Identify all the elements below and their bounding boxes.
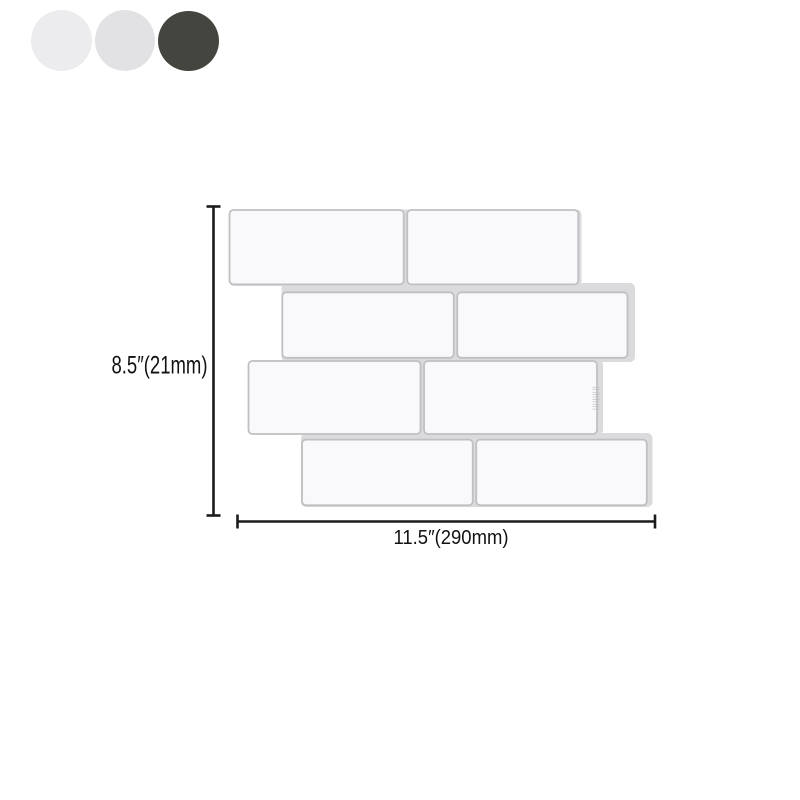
svg-text:11.5″(290mm): 11.5″(290mm)	[394, 526, 509, 549]
svg-text:8.5″(21mm): 8.5″(21mm)	[112, 352, 208, 380]
svg-text:||||||||||: ||||||||||	[593, 386, 600, 410]
